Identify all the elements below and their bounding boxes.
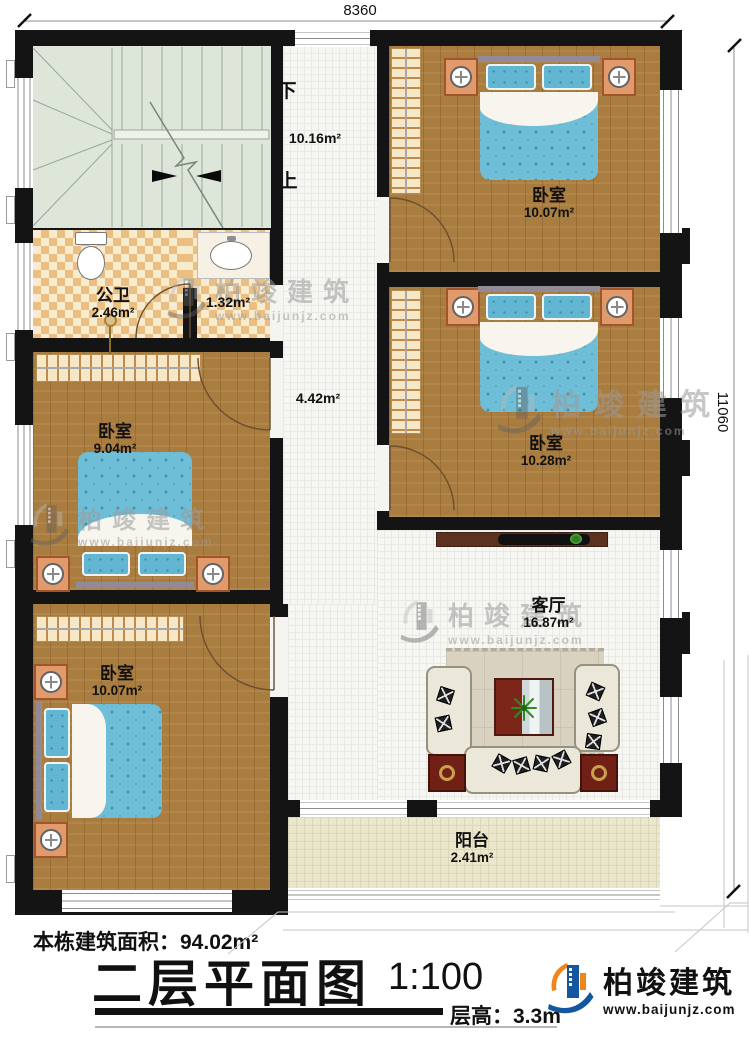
sofa-left	[426, 666, 472, 756]
sink-basin	[210, 241, 252, 270]
toilet-tank	[75, 232, 107, 245]
lamp-icon	[608, 66, 630, 88]
nightstand	[446, 288, 480, 326]
pillow	[542, 294, 592, 320]
brand-name: 柏竣建筑	[603, 958, 736, 1002]
pillow	[82, 552, 130, 576]
pilaster	[6, 855, 15, 883]
pilaster	[6, 540, 15, 568]
nightstand	[34, 664, 68, 700]
brand-logo-icon	[545, 960, 595, 1016]
sofa-pillow	[435, 715, 453, 733]
floor-plan-canvas: 8360 11060 下 上 10.16m² 4.42m² 1.32m² 卧室 …	[0, 0, 750, 1037]
room-name: 卧室	[489, 186, 609, 205]
nightstand	[36, 556, 70, 592]
room-area: 2.46m²	[63, 305, 163, 320]
lamp-icon	[606, 296, 628, 318]
brand-logo-icon	[28, 501, 70, 548]
room-label-balcony: 阳台 2.41m²	[422, 831, 522, 865]
washroom-area-label: 1.32m²	[186, 294, 270, 310]
floor-drain-stem	[109, 327, 111, 355]
side-table	[428, 754, 466, 792]
plant-small-icon	[570, 534, 582, 544]
brand-logo-icon	[495, 382, 543, 436]
room-label-bedroom-mid-left: 卧室 9.04m²	[65, 422, 165, 456]
watermark-text: 柏竣建筑 www.baijunjz.com	[551, 380, 723, 438]
watermark-url: www.baijunjz.com	[78, 535, 214, 549]
pilaster	[6, 333, 15, 361]
room-name: 卧室	[67, 664, 167, 683]
pillow	[44, 708, 70, 758]
watermark-url: www.baijunjz.com	[448, 633, 592, 647]
room-label-bedroom-top-right: 卧室 10.07m²	[489, 186, 609, 220]
watermark-text: 柏竣建筑 www.baijunjz.com	[78, 500, 214, 549]
lamp-icon	[40, 829, 62, 851]
side-table	[580, 754, 618, 792]
room-name: 卧室	[65, 422, 165, 441]
window-living-south-1	[300, 800, 407, 817]
watermark-url: www.baijunjz.com	[215, 309, 359, 323]
brand-block: 柏竣建筑 www.baijunjz.com	[545, 958, 736, 1017]
room-label-living: 客厅 16.87m²	[496, 596, 601, 630]
lamp-icon	[40, 671, 62, 693]
nightstand	[34, 822, 68, 858]
toilet-bowl	[77, 246, 105, 280]
wardrobe	[36, 616, 184, 642]
bed-headboard	[36, 702, 42, 820]
nightstand	[196, 556, 230, 592]
window-living-right-1	[660, 550, 682, 618]
room-label-bedroom-mid-right: 卧室 10.28m²	[486, 434, 606, 468]
room-area: 10.07m²	[67, 683, 167, 698]
corridor-area-label: 10.16m²	[269, 130, 361, 146]
pier-right	[682, 440, 690, 476]
room-hallway	[288, 604, 377, 800]
bed-headboard	[76, 582, 194, 588]
nightstand	[444, 58, 478, 96]
brand-url: www.baijunjz.com	[603, 1002, 736, 1017]
window-living-right-2	[660, 697, 682, 763]
balcony-railing	[288, 888, 660, 902]
pilaster	[6, 196, 15, 224]
room-area: 10.07m²	[489, 205, 609, 220]
brand-logo-icon	[398, 598, 440, 645]
coffee-table	[494, 678, 554, 736]
watermark: 柏竣建筑 www.baijunjz.com	[495, 380, 723, 438]
bed-headboard	[478, 56, 600, 62]
hallway-area-label: 4.42m²	[278, 390, 358, 406]
wardrobe	[391, 48, 421, 194]
wardrobe	[391, 290, 421, 434]
window-bathroom-left	[15, 243, 33, 330]
room-area: 2.41m²	[422, 850, 522, 865]
watermark: 柏竣建筑 www.baijunjz.com	[28, 500, 214, 549]
pillow	[486, 294, 536, 320]
lamp-icon	[450, 66, 472, 88]
pillow	[542, 64, 592, 90]
sink-tap-icon	[227, 236, 236, 241]
plant-icon	[509, 693, 539, 723]
brand-text: 柏竣建筑 www.baijunjz.com	[603, 958, 736, 1017]
room-label-bedroom-bottom-left: 卧室 10.07m²	[67, 664, 167, 698]
dimension-top: 8360	[325, 2, 395, 19]
room-label-bathroom: 公卫 2.46m²	[63, 286, 163, 320]
window-corridor-top	[295, 30, 370, 47]
window-bedroom-top-right	[660, 90, 682, 233]
page-title: 二层平面图	[92, 944, 372, 1016]
room-name: 阳台	[422, 831, 522, 850]
bed-sheet	[72, 704, 106, 818]
room-name: 客厅	[496, 596, 601, 615]
room-name: 卧室	[486, 434, 606, 453]
door-gap-bedroom-top-right	[377, 197, 389, 263]
wardrobe	[36, 354, 202, 382]
nightstand	[600, 288, 634, 326]
bed	[36, 702, 164, 820]
gold-ring-icon	[439, 765, 455, 781]
toilet	[72, 232, 110, 282]
stair-up-label: 上	[273, 166, 303, 193]
lamp-icon	[452, 296, 474, 318]
pillow	[486, 64, 536, 90]
title-rule	[95, 1008, 443, 1015]
room-stairwell	[33, 46, 271, 228]
watermark-name: 柏竣建筑	[551, 380, 723, 424]
pillow	[138, 552, 186, 576]
room-area: 10.28m²	[486, 453, 606, 468]
lamp-icon	[202, 563, 224, 585]
pillow	[44, 762, 70, 812]
watermark-name: 柏竣建筑	[78, 500, 214, 535]
nightstand	[602, 58, 636, 96]
room-area: 16.87m²	[496, 615, 601, 630]
window-bedroom-bottom	[62, 890, 232, 912]
room-name: 公卫	[63, 286, 163, 305]
lamp-icon	[42, 563, 64, 585]
window-stairs-left	[15, 78, 33, 188]
pier-right	[682, 228, 690, 264]
pier-right	[682, 612, 690, 654]
window-living-south-2	[437, 800, 650, 817]
room-area: 9.04m²	[65, 441, 165, 456]
sofa-pillow	[585, 733, 602, 750]
sofa-pillow	[533, 755, 551, 773]
scale-label: 1:100	[388, 956, 483, 999]
door-gap-bedroom-bottom-left	[270, 617, 288, 697]
stair-down-label: 下	[272, 76, 302, 103]
pilaster	[6, 60, 15, 88]
door-gap-bedroom-mid-right	[377, 445, 389, 511]
gold-ring-icon	[591, 765, 607, 781]
bed	[478, 56, 600, 182]
bed-headboard	[478, 286, 600, 292]
